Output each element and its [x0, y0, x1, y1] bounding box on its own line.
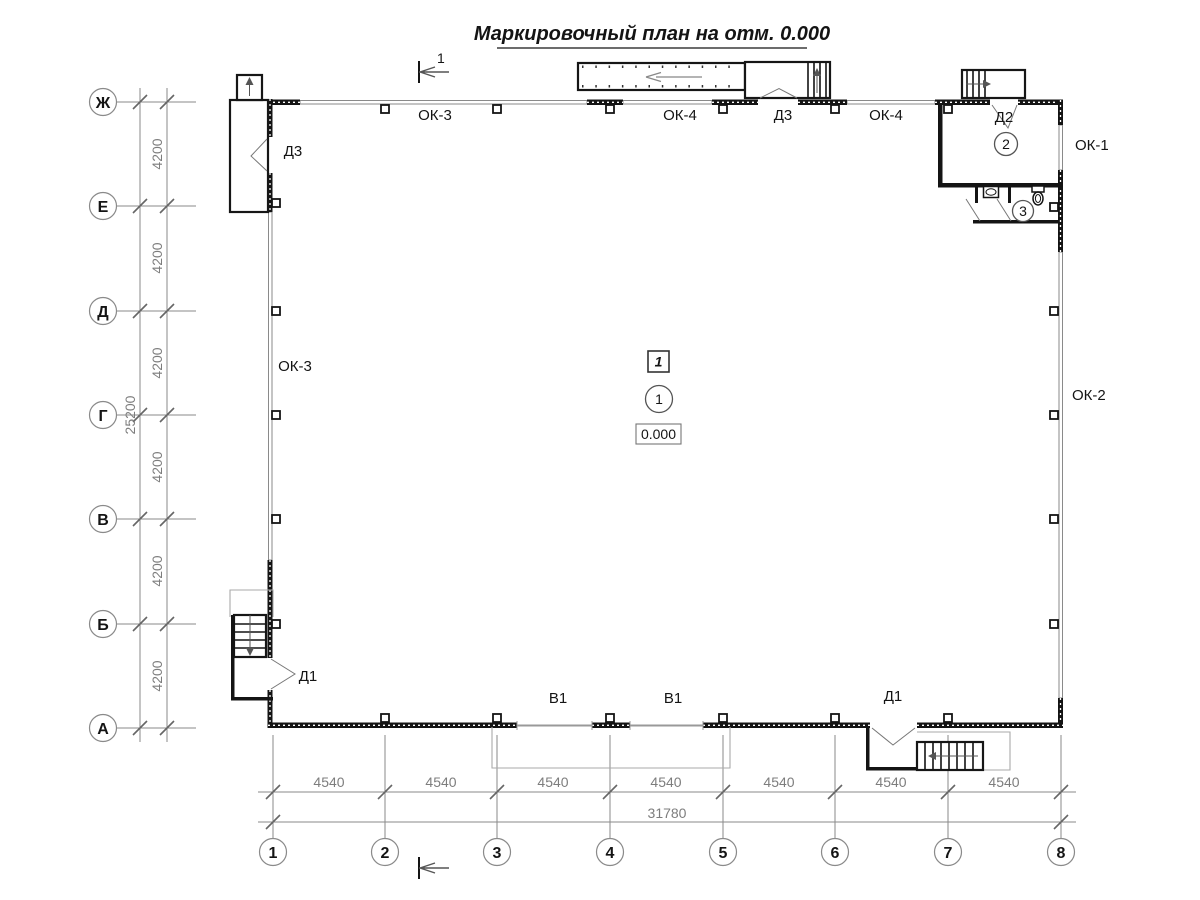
- col-axis-label: 8: [1057, 845, 1066, 862]
- window-band-ok1: [1059, 125, 1063, 170]
- wc-stall-partition: [1008, 187, 1011, 203]
- enclosure-wall: [866, 727, 870, 770]
- v-span-dim: 4200: [149, 451, 165, 482]
- window-band-ok3-left: [269, 212, 273, 560]
- h-span-dim: 4540: [988, 774, 1019, 790]
- door-mark: Д2: [995, 109, 1014, 126]
- window-mark: ОК-3: [418, 107, 452, 124]
- door-mark: Д3: [774, 107, 793, 124]
- window-mark: ОК-2: [1072, 387, 1106, 404]
- pilaster: [1050, 411, 1058, 419]
- h-span-dim: 4540: [650, 774, 681, 790]
- pilaster: [272, 620, 280, 628]
- window-mark: ОК-4: [869, 107, 903, 124]
- window-mark: ОК-1: [1075, 137, 1109, 154]
- drawing-sheet: Маркировочный план на отм. 0.000 Ж Е Д Г…: [0, 0, 1200, 900]
- v-span-dim: 4200: [149, 555, 165, 586]
- col-axis-label: 3: [493, 845, 502, 862]
- floor-plan-drawing: Маркировочный план на отм. 0.000 Ж Е Д Г…: [0, 0, 1200, 900]
- pilaster: [1050, 620, 1058, 628]
- v-span-dim: 4200: [149, 242, 165, 273]
- v-total-dim: 25200: [122, 395, 138, 434]
- v-span-dim: 4200: [149, 660, 165, 691]
- room-number: 2: [1002, 136, 1010, 152]
- room-number: 3: [1019, 203, 1027, 219]
- pilaster: [381, 105, 389, 113]
- window-band-ok3-top: [300, 101, 587, 105]
- enclosure-wall: [866, 767, 917, 771]
- pilaster: [831, 714, 839, 722]
- row-axis-label: В: [97, 512, 109, 529]
- pilaster: [272, 411, 280, 419]
- pilaster: [719, 714, 727, 722]
- pilaster: [606, 714, 614, 722]
- pilaster: [606, 105, 614, 113]
- vestibule-outline: [230, 100, 268, 212]
- title-block: Маркировочный план на отм. 0.000: [474, 23, 830, 48]
- v-span-dim: 4200: [149, 347, 165, 378]
- gate-mark: В1: [664, 690, 682, 707]
- col-axis-label: 5: [719, 845, 728, 862]
- pilaster: [1050, 307, 1058, 315]
- pilaster: [272, 515, 280, 523]
- enclosure-wall: [231, 697, 273, 701]
- window-band-ok4-right: [847, 101, 935, 105]
- window-band-ok4-left: [623, 101, 712, 105]
- window-band-ok2: [1059, 252, 1063, 698]
- pilaster: [831, 105, 839, 113]
- pilaster: [272, 199, 280, 207]
- col-axis-label: 7: [944, 845, 953, 862]
- h-span-dim: 4540: [875, 774, 906, 790]
- row-axis-label: Ж: [95, 95, 111, 112]
- window-mark: ОК-3: [278, 358, 312, 375]
- row-axis-label: Б: [97, 617, 109, 634]
- drawing-title: Маркировочный план на отм. 0.000: [474, 23, 830, 45]
- pilaster: [944, 105, 952, 113]
- room-number: 1: [655, 391, 663, 407]
- door-mark: Д1: [884, 688, 903, 705]
- h-span-dim: 4540: [537, 774, 568, 790]
- toilet-cistern-icon: [1032, 186, 1044, 192]
- h-total-dim: 31780: [648, 805, 687, 821]
- row-axis-label: Е: [98, 199, 109, 216]
- row-axis-label: Д: [97, 304, 109, 321]
- pilaster: [944, 714, 952, 722]
- col-axis-label: 1: [269, 845, 278, 862]
- v-span-dim: 4200: [149, 138, 165, 169]
- h-span-dim: 4540: [425, 774, 456, 790]
- pilaster: [493, 105, 501, 113]
- wc-stall-partition: [975, 187, 978, 203]
- window-mark: ОК-4: [663, 107, 697, 124]
- pilaster: [272, 307, 280, 315]
- enclosure-wall: [231, 615, 235, 700]
- wc-bottom-wall: [973, 220, 1059, 224]
- row-axis-label: Г: [98, 408, 107, 425]
- pilaster: [381, 714, 389, 722]
- section-number: 1: [437, 50, 445, 66]
- pilaster: [1050, 515, 1058, 523]
- col-axis-label: 6: [831, 845, 840, 862]
- pilaster: [493, 714, 501, 722]
- door-mark: Д1: [299, 668, 318, 685]
- gate-mark: В1: [549, 690, 567, 707]
- h-span-dim: 4540: [313, 774, 344, 790]
- wall-segment: [268, 560, 273, 658]
- pilaster: [1050, 203, 1058, 211]
- col-axis-label: 4: [606, 845, 615, 862]
- col-axis-label: 2: [381, 845, 390, 862]
- h-span-dim: 4540: [763, 774, 794, 790]
- elevation-value: 0.000: [641, 426, 676, 442]
- plan-number: 1: [655, 354, 663, 370]
- partition-wall: [938, 103, 943, 185]
- door-mark: Д3: [284, 143, 303, 160]
- row-axis-label: А: [97, 721, 109, 738]
- sheet-background: [0, 0, 1200, 900]
- pilaster: [719, 105, 727, 113]
